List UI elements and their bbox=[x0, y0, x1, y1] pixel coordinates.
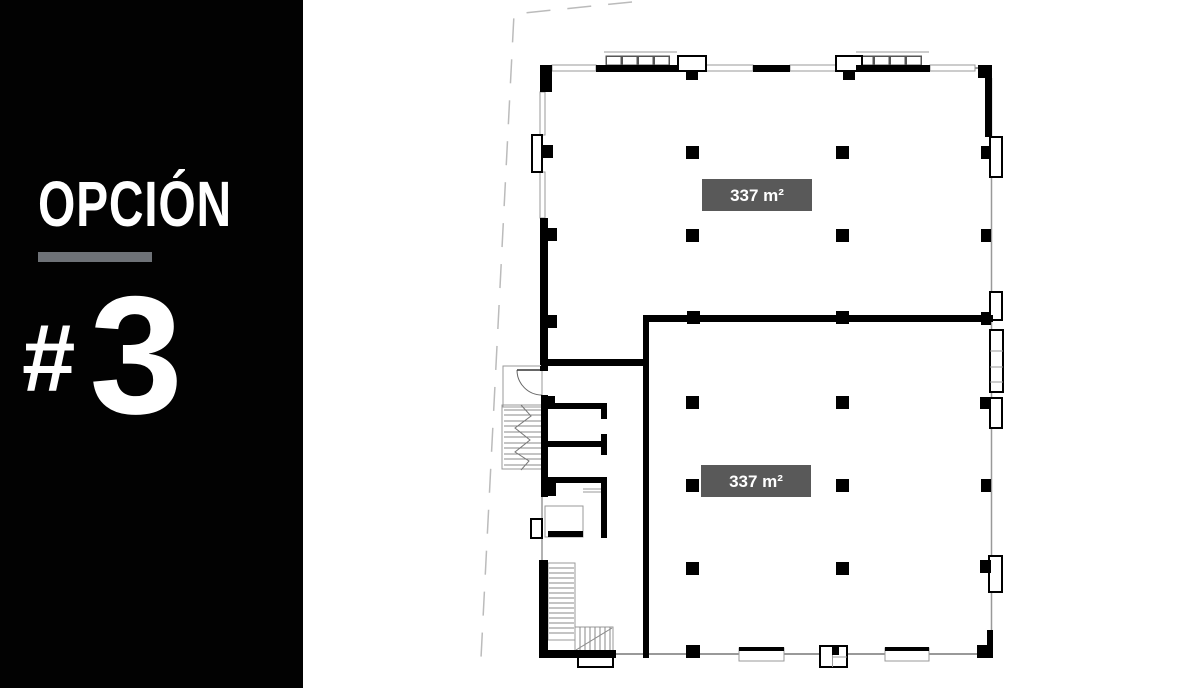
option-number-value: 3 bbox=[89, 278, 182, 433]
window bbox=[930, 65, 975, 71]
vent-boxes bbox=[606, 56, 921, 65]
window bbox=[790, 65, 838, 71]
vent-box bbox=[654, 56, 669, 65]
window-frame bbox=[990, 137, 1002, 177]
window-frame bbox=[990, 330, 1003, 392]
area-label-text: 337 m² bbox=[729, 472, 783, 491]
window bbox=[540, 172, 545, 218]
door-arc bbox=[517, 370, 542, 395]
window bbox=[552, 65, 596, 71]
lower-unit-area-label: 337 m² bbox=[701, 465, 811, 497]
stair-direction-line bbox=[576, 628, 612, 650]
lower-stair-treads-horizontal bbox=[580, 627, 610, 651]
partition-line bbox=[583, 489, 603, 492]
window bbox=[540, 92, 545, 135]
walls bbox=[539, 65, 993, 658]
option-title: OPCIÓN bbox=[38, 172, 232, 236]
vent-box bbox=[890, 56, 905, 65]
vent-box bbox=[874, 56, 889, 65]
window bbox=[706, 65, 753, 71]
slide: 337 m² 337 m² OPCIÓN # 3 bbox=[0, 0, 1200, 688]
vent-box bbox=[906, 56, 921, 65]
option-number-prefix: # bbox=[22, 311, 75, 407]
option-number: # 3 bbox=[22, 278, 183, 433]
area-label-text: 337 m² bbox=[730, 186, 784, 205]
upper-unit-area-label: 337 m² bbox=[702, 179, 812, 211]
entry-door bbox=[517, 370, 542, 395]
window-frame bbox=[532, 135, 542, 172]
vent-box bbox=[638, 56, 653, 65]
lower-stair-treads bbox=[549, 568, 574, 633]
window-frame bbox=[990, 398, 1002, 428]
vent-box bbox=[606, 56, 621, 65]
window-frame bbox=[531, 519, 542, 538]
vent-box bbox=[622, 56, 637, 65]
entry-vestibule bbox=[503, 366, 542, 407]
option-sidebar: OPCIÓN # 3 bbox=[0, 0, 303, 688]
property-boundary-line bbox=[481, 2, 632, 658]
facade-box bbox=[678, 56, 706, 71]
